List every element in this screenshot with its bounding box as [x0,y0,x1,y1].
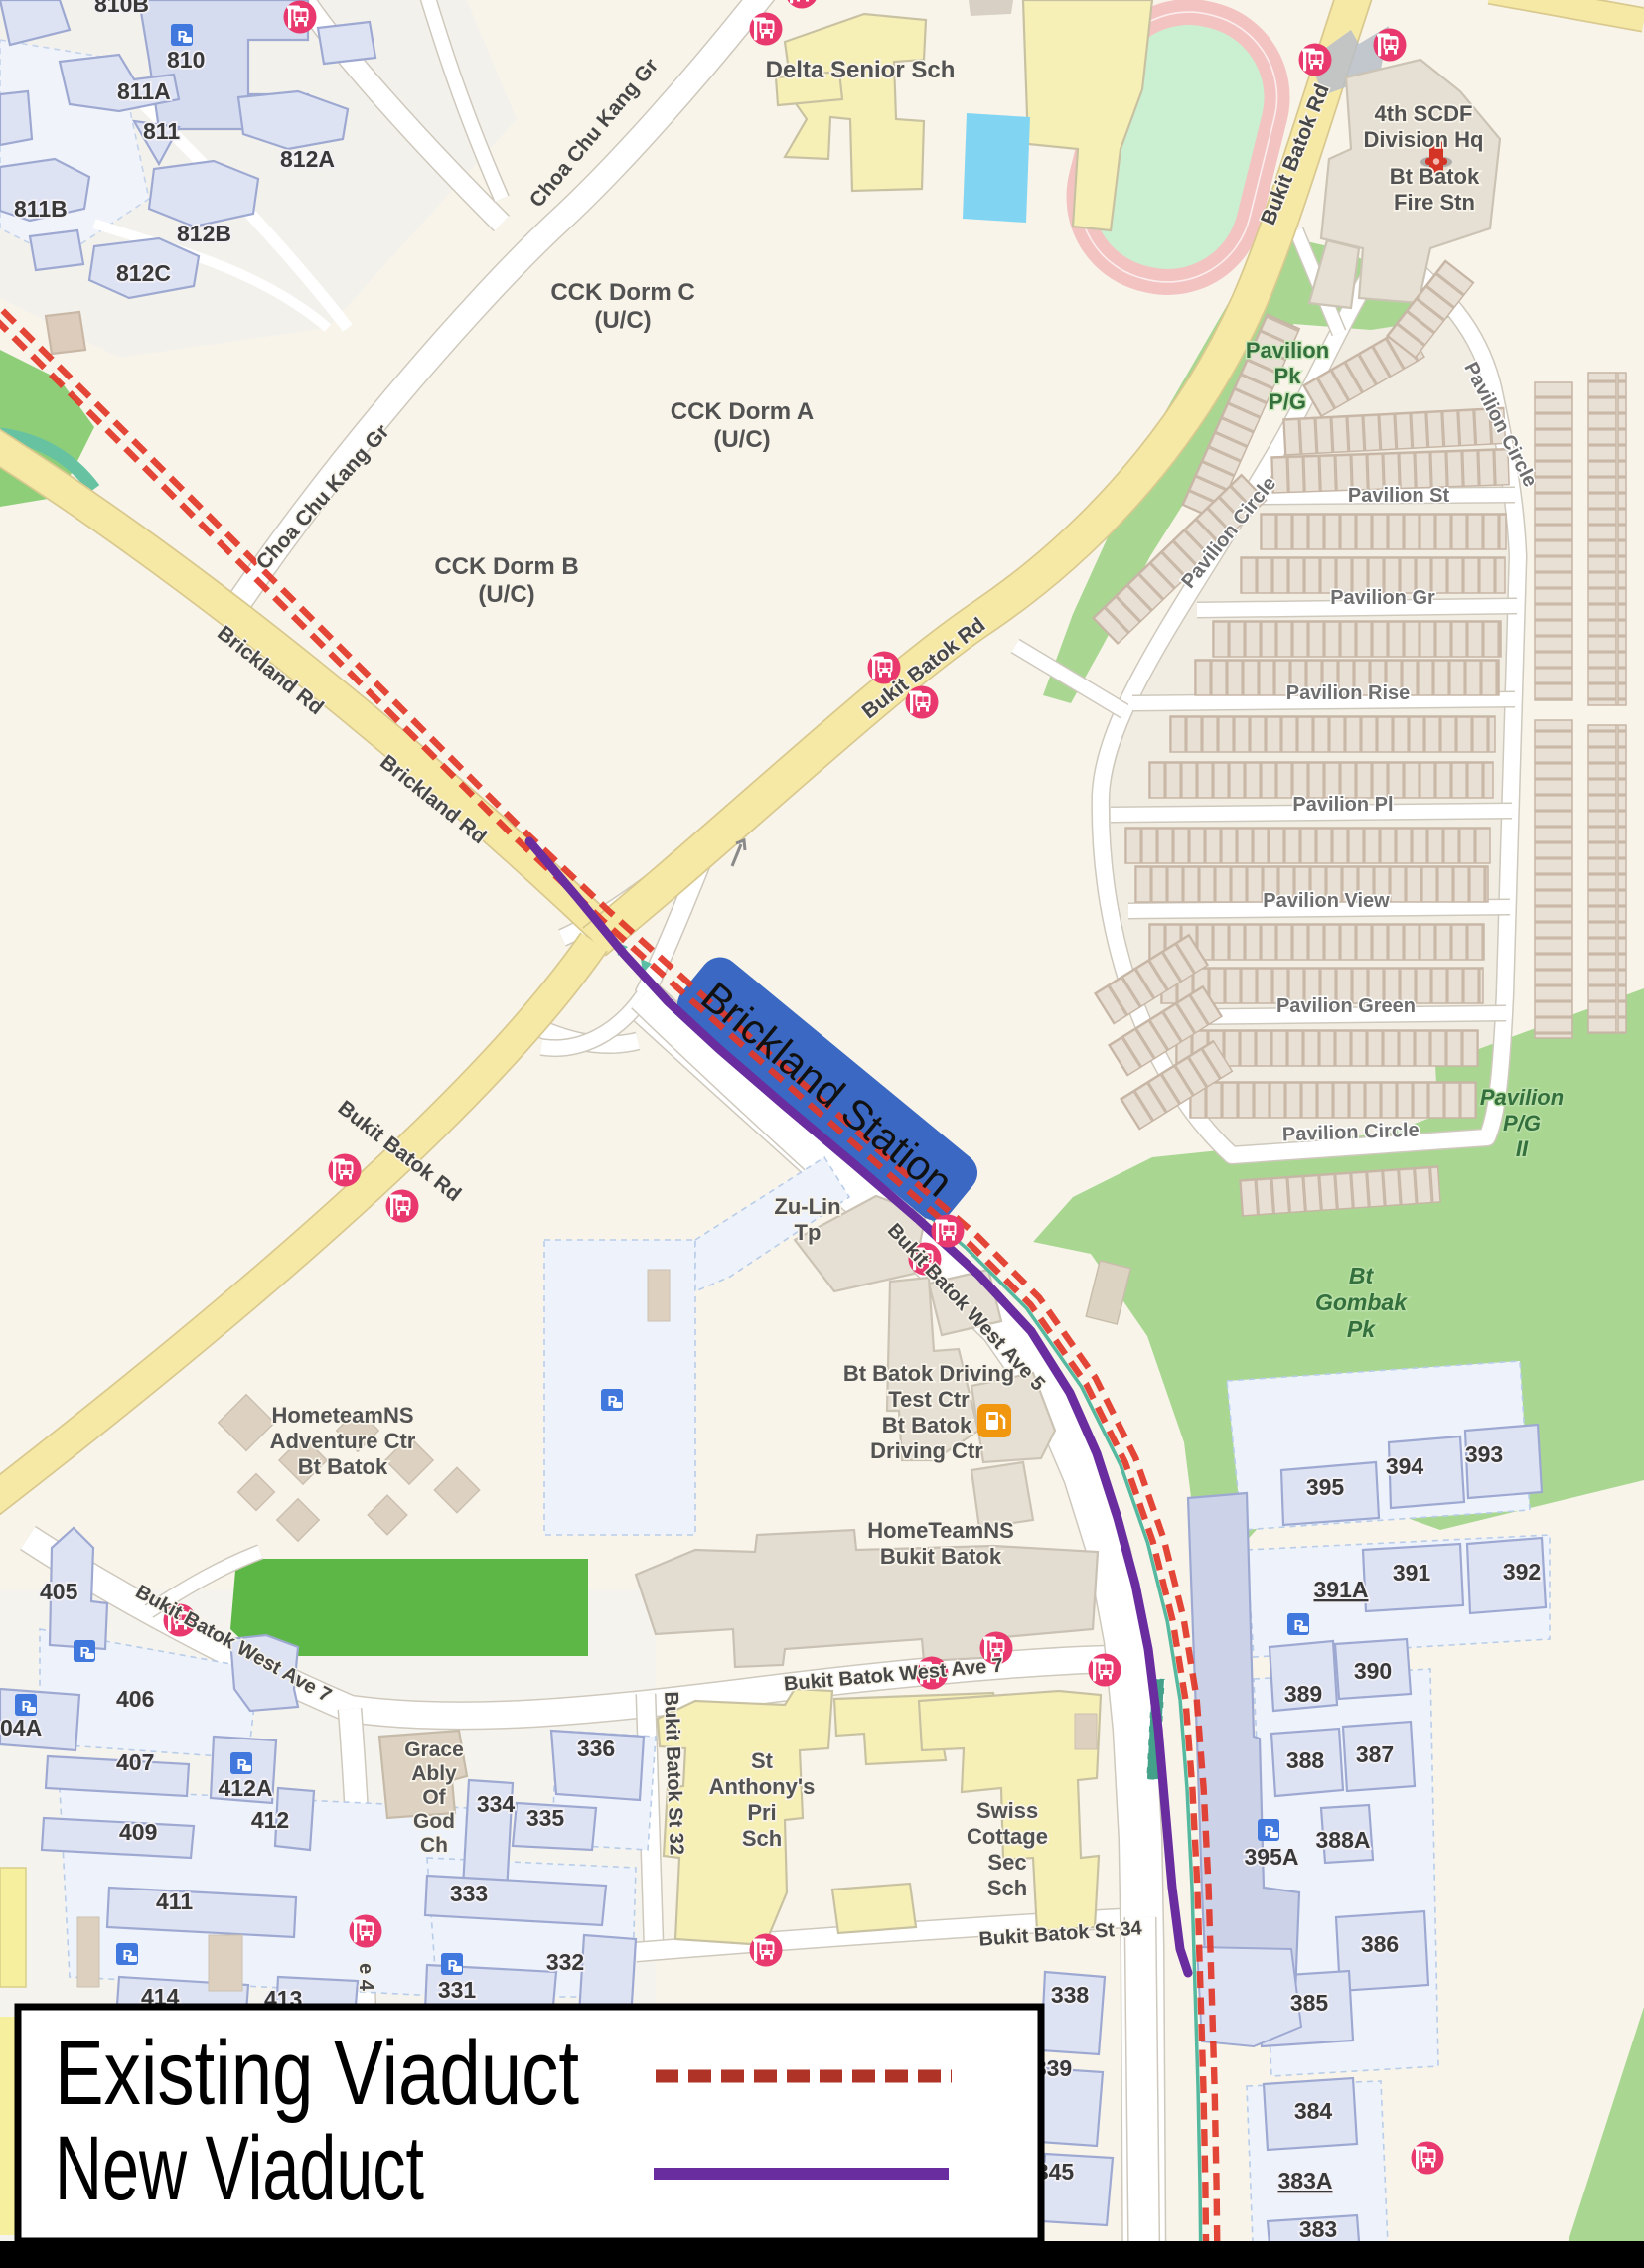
svg-text:395A: 395A [1245,1844,1299,1870]
svg-text:394: 394 [1386,1453,1424,1479]
svg-text:Delta Senior Sch: Delta Senior Sch [766,57,956,83]
svg-text:395: 395 [1306,1474,1345,1500]
svg-text:409: 409 [119,1819,157,1845]
svg-text:Pavilion Rise: Pavilion Rise [1286,682,1411,704]
svg-text:Bt BatokFire Stn: Bt BatokFire Stn [1390,164,1480,215]
svg-text:389: 389 [1284,1681,1322,1707]
svg-text:e 4: e 4 [355,1963,376,1992]
svg-text:811B: 811B [14,196,68,222]
svg-text:Pavilion St: Pavilion St [1348,485,1450,507]
svg-text:810: 810 [167,47,205,73]
svg-text:New Viaduct: New Viaduct [55,2118,424,2219]
svg-text:4th SCDFDivision Hq: 4th SCDFDivision Hq [1363,101,1483,152]
svg-text:392: 392 [1503,1559,1541,1585]
svg-text:407: 407 [116,1749,154,1775]
svg-text:336: 336 [577,1736,615,1761]
svg-text:387: 387 [1356,1741,1394,1767]
svg-text:Bt BatokDriving Ctr: Bt BatokDriving Ctr [870,1413,983,1463]
svg-text:393: 393 [1465,1441,1503,1467]
svg-text:812C: 812C [116,260,171,286]
svg-text:333: 333 [450,1881,488,1906]
svg-text:384: 384 [1294,2098,1333,2124]
svg-text:335: 335 [526,1805,565,1831]
svg-text:388A: 388A [1316,1827,1371,1853]
svg-text:Pavilion Green: Pavilion Green [1276,995,1416,1017]
svg-text:338: 338 [1051,1982,1090,2008]
svg-text:Existing Viaduct: Existing Viaduct [55,2023,579,2124]
svg-text:391A: 391A [1314,1577,1369,1602]
svg-text:811A: 811A [117,78,171,104]
svg-text:388: 388 [1286,1747,1325,1773]
svg-text:812B: 812B [177,221,231,246]
svg-text:383: 383 [1299,2216,1337,2242]
svg-text:391: 391 [1393,1560,1431,1586]
svg-text:412: 412 [251,1807,289,1833]
svg-text:Pavilion Pl: Pavilion Pl [1292,794,1393,816]
svg-text:390: 390 [1354,1658,1392,1684]
svg-text:HomeTeamNSBukit Batok: HomeTeamNSBukit Batok [867,1518,1014,1569]
svg-text:383A: 383A [1278,2168,1333,2193]
svg-text:811: 811 [143,118,180,144]
svg-text:04A: 04A [0,1715,42,1740]
svg-text:405: 405 [40,1579,78,1604]
svg-text:411: 411 [156,1889,193,1914]
svg-text:812A: 812A [280,146,335,172]
svg-text:412A: 412A [219,1775,273,1801]
svg-text:334: 334 [477,1791,516,1817]
svg-text:Pavilion View: Pavilion View [1263,890,1390,912]
svg-text:406: 406 [116,1686,154,1712]
svg-text:386: 386 [1361,1931,1399,1957]
svg-text:331: 331 [438,1977,477,2003]
svg-text:332: 332 [546,1949,584,1975]
svg-text:385: 385 [1290,1990,1329,2016]
svg-text:810B: 810B [94,0,149,17]
svg-text:Pavilion Gr: Pavilion Gr [1330,587,1435,609]
